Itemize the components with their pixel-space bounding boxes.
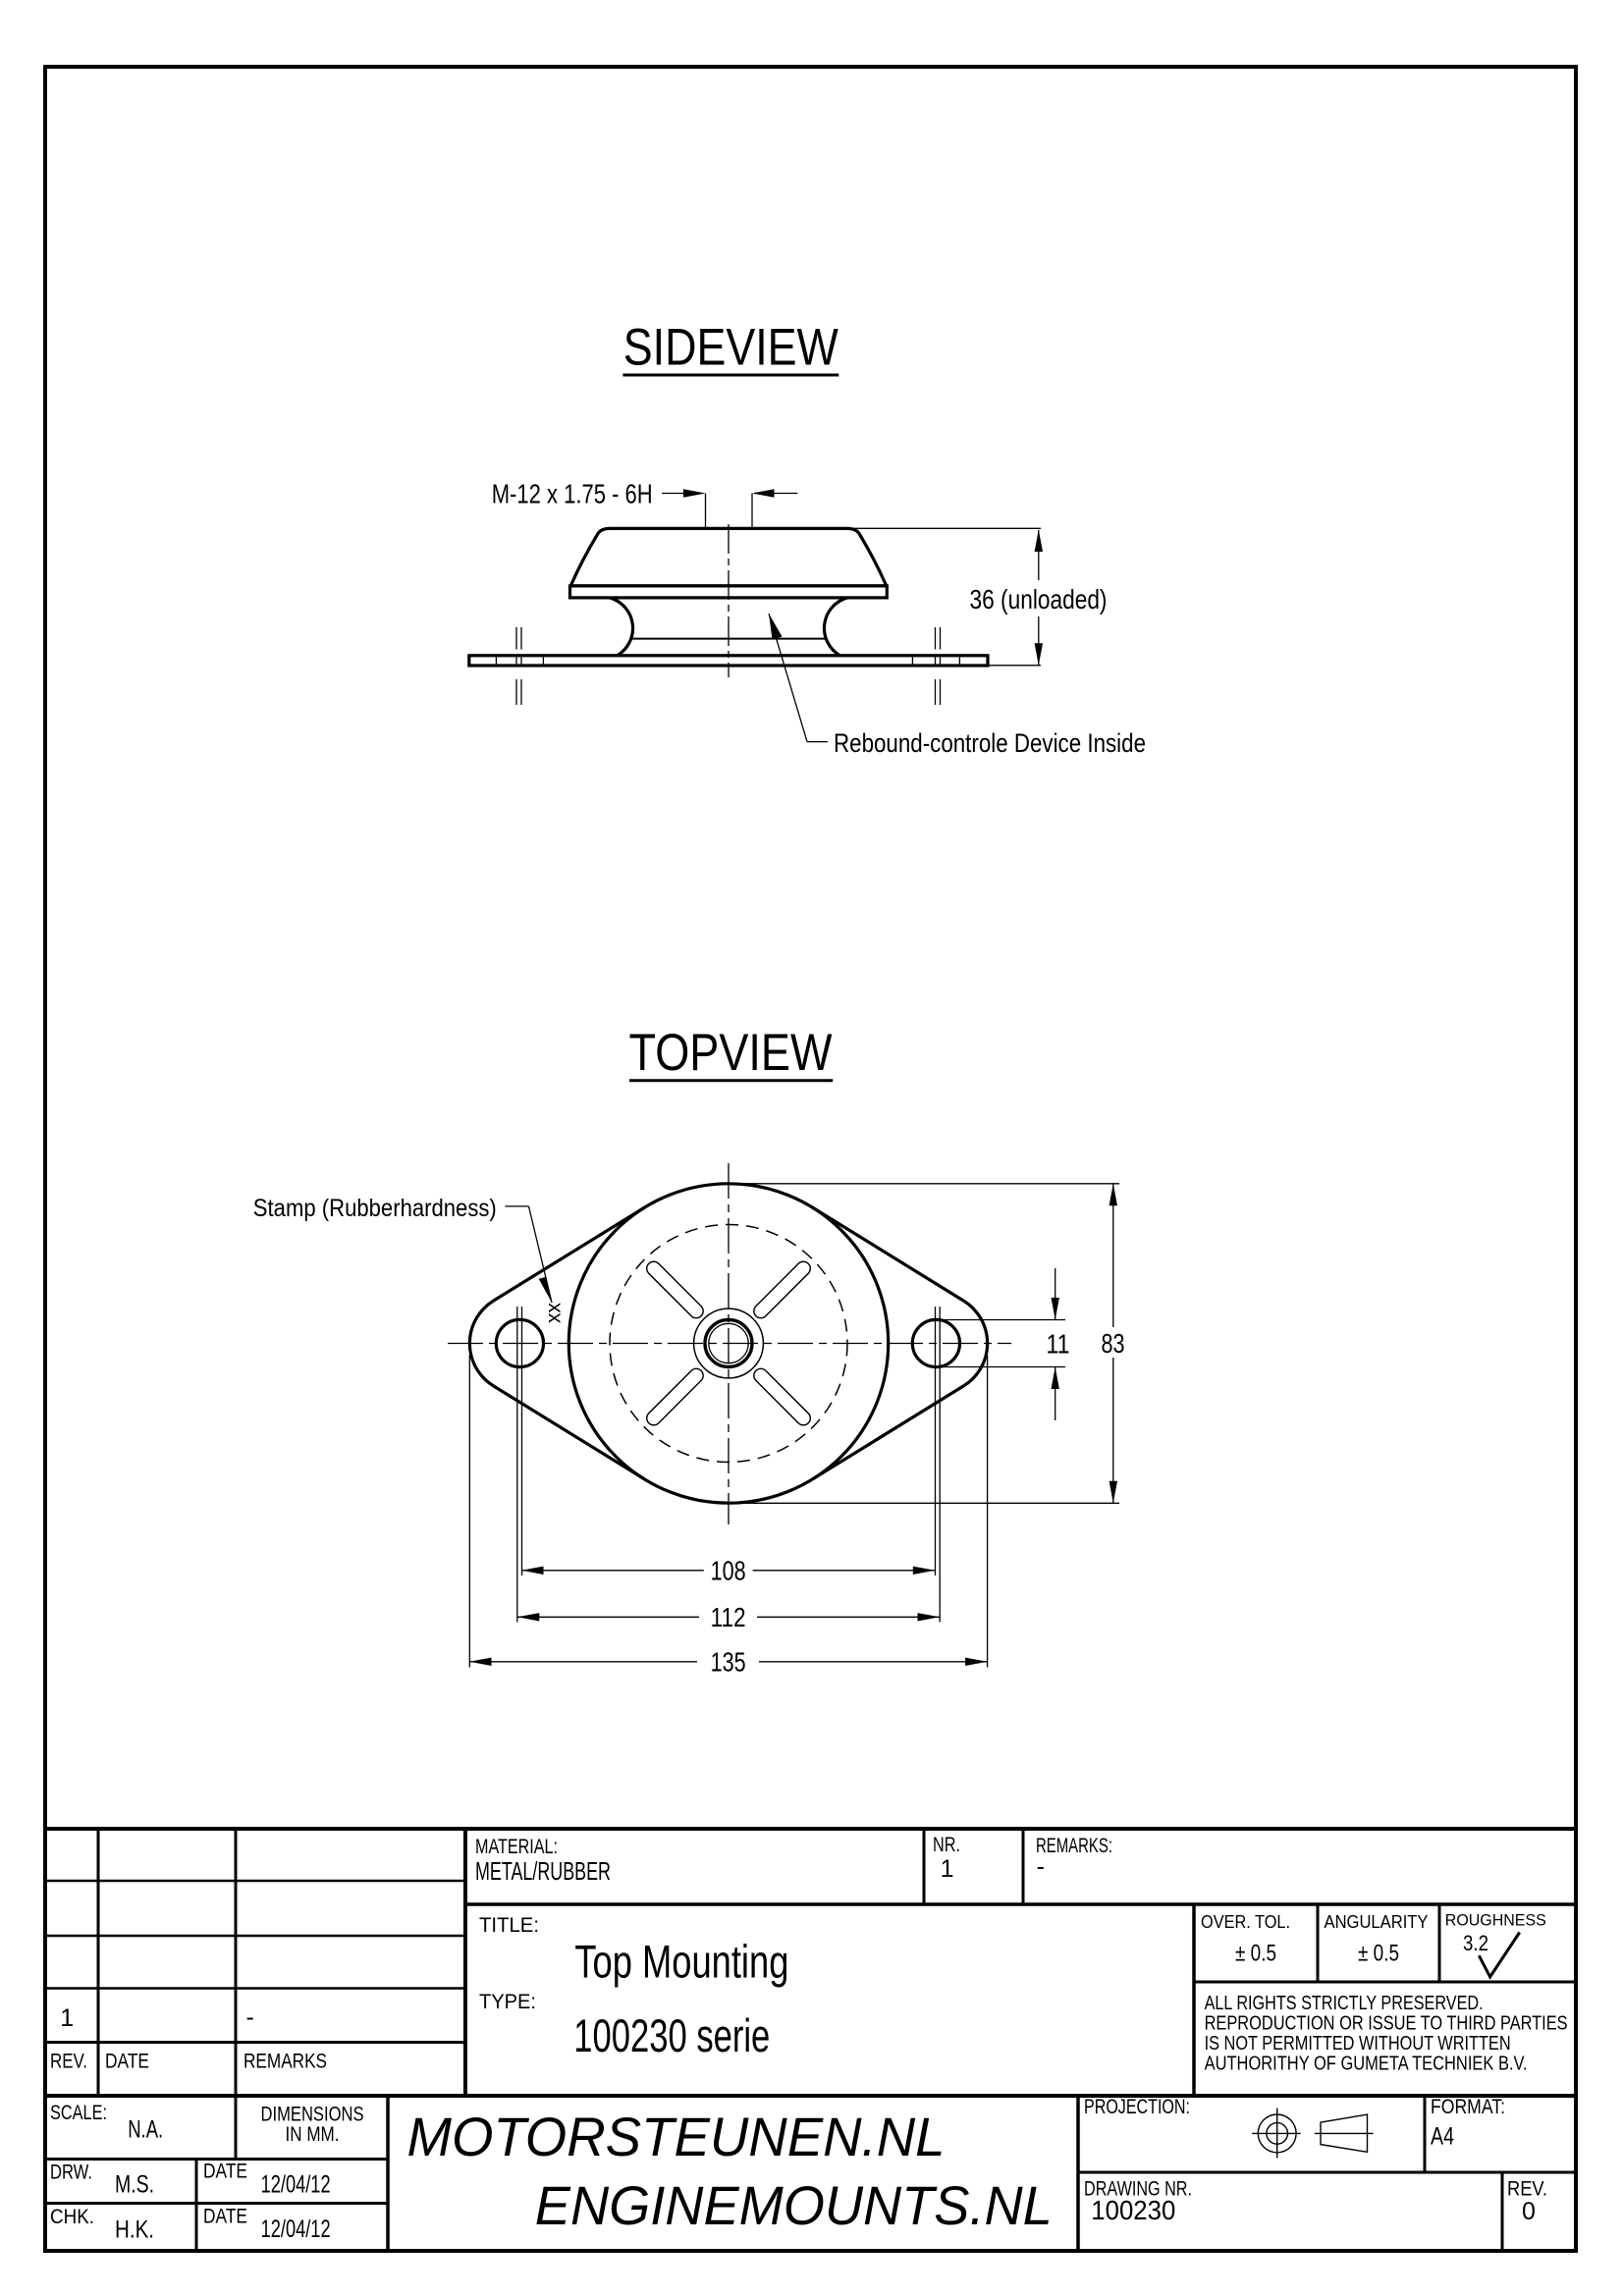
svg-text:M.S.: M.S. [115, 2171, 154, 2199]
svg-text:DATE: DATE [105, 2051, 149, 2073]
svg-text:CHK.: CHK. [50, 2206, 94, 2228]
svg-text:DRW.: DRW. [50, 2162, 92, 2184]
svg-text:108: 108 [711, 1556, 746, 1586]
svg-text:12/04/12: 12/04/12 [261, 2171, 331, 2199]
svg-text:REMARKS: REMARKS [243, 2051, 327, 2073]
svg-text:NR.: NR. [933, 1834, 960, 1856]
svg-text:135: 135 [711, 1647, 746, 1678]
svg-text:± 0.5: ± 0.5 [1358, 1941, 1399, 1967]
svg-text:1: 1 [60, 2004, 74, 2032]
svg-text:METAL/RUBBER: METAL/RUBBER [475, 1856, 611, 1886]
svg-text:REMARKS:: REMARKS: [1036, 1835, 1112, 1857]
svg-text:Stamp (Rubberhardness): Stamp (Rubberhardness) [253, 1195, 497, 1222]
svg-text:TOPVIEW: TOPVIEW [629, 1024, 833, 1082]
svg-text:N.A.: N.A. [128, 2116, 163, 2144]
svg-text:TYPE:: TYPE: [479, 1991, 536, 2013]
svg-text:100230: 100230 [1091, 2195, 1175, 2225]
svg-text:ENGINEMOUNTS.NL: ENGINEMOUNTS.NL [535, 2174, 1053, 2236]
svg-text:M-12 x 1.75 - 6H: M-12 x 1.75 - 6H [492, 479, 653, 509]
svg-text:1: 1 [941, 1855, 954, 1883]
svg-text:± 0.5: ± 0.5 [1235, 1941, 1276, 1967]
svg-text:100230 serie: 100230 serie [573, 2009, 770, 2061]
svg-text:MOTORSTEUNEN.NL: MOTORSTEUNEN.NL [407, 2106, 946, 2167]
svg-text:IS NOT PERMITTED WITHOUT WRITT: IS NOT PERMITTED WITHOUT WRITTEN [1205, 2033, 1511, 2055]
svg-text:AUTHORITHY OF GUMETA TECHNIEK: AUTHORITHY OF GUMETA TECHNIEK B.V. [1205, 2053, 1528, 2074]
svg-text:ANGULARITY: ANGULARITY [1325, 1911, 1429, 1932]
svg-text:OVER. TOL.: OVER. TOL. [1201, 1911, 1290, 1932]
svg-text:3.2: 3.2 [1463, 1931, 1488, 1955]
svg-text:DATE: DATE [203, 2161, 247, 2183]
svg-text:-: - [246, 2003, 254, 2031]
svg-text:36 (unloaded): 36 (unloaded) [970, 584, 1108, 614]
svg-text:0: 0 [1522, 2198, 1536, 2225]
svg-text:ALL RIGHTS STRICTLY PRESERVED.: ALL RIGHTS STRICTLY PRESERVED. [1205, 1993, 1484, 2014]
svg-text:12/04/12: 12/04/12 [261, 2216, 331, 2243]
svg-text:FORMAT:: FORMAT: [1431, 2096, 1505, 2118]
svg-text:83: 83 [1102, 1328, 1125, 1359]
svg-text:Rebound-controle Device Inside: Rebound-controle Device Inside [834, 728, 1146, 758]
svg-text:xx: xx [543, 1303, 566, 1324]
svg-text:MATERIAL:: MATERIAL: [475, 1836, 558, 1858]
svg-text:ROUGHNESS: ROUGHNESS [1445, 1912, 1546, 1930]
svg-text:SIDEVIEW: SIDEVIEW [623, 319, 839, 377]
svg-text:Top Mounting: Top Mounting [574, 1935, 788, 1987]
svg-text:SCALE:: SCALE: [50, 2102, 107, 2124]
svg-text:H.K.: H.K. [115, 2216, 154, 2244]
svg-text:11: 11 [1047, 1329, 1070, 1360]
svg-text:TITLE:: TITLE: [479, 1914, 539, 1937]
svg-text:112: 112 [711, 1602, 746, 1632]
svg-text:DATE: DATE [203, 2206, 247, 2228]
svg-text:REV.: REV. [50, 2051, 87, 2073]
svg-text:REPRODUCTION OR ISSUE TO THIRD: REPRODUCTION OR ISSUE TO THIRD PARTIES [1205, 2012, 1568, 2034]
svg-text:IN MM.: IN MM. [286, 2123, 340, 2146]
svg-text:A4: A4 [1431, 2123, 1454, 2151]
svg-text:-: - [1037, 1853, 1045, 1881]
svg-text:PROJECTION:: PROJECTION: [1084, 2096, 1190, 2118]
